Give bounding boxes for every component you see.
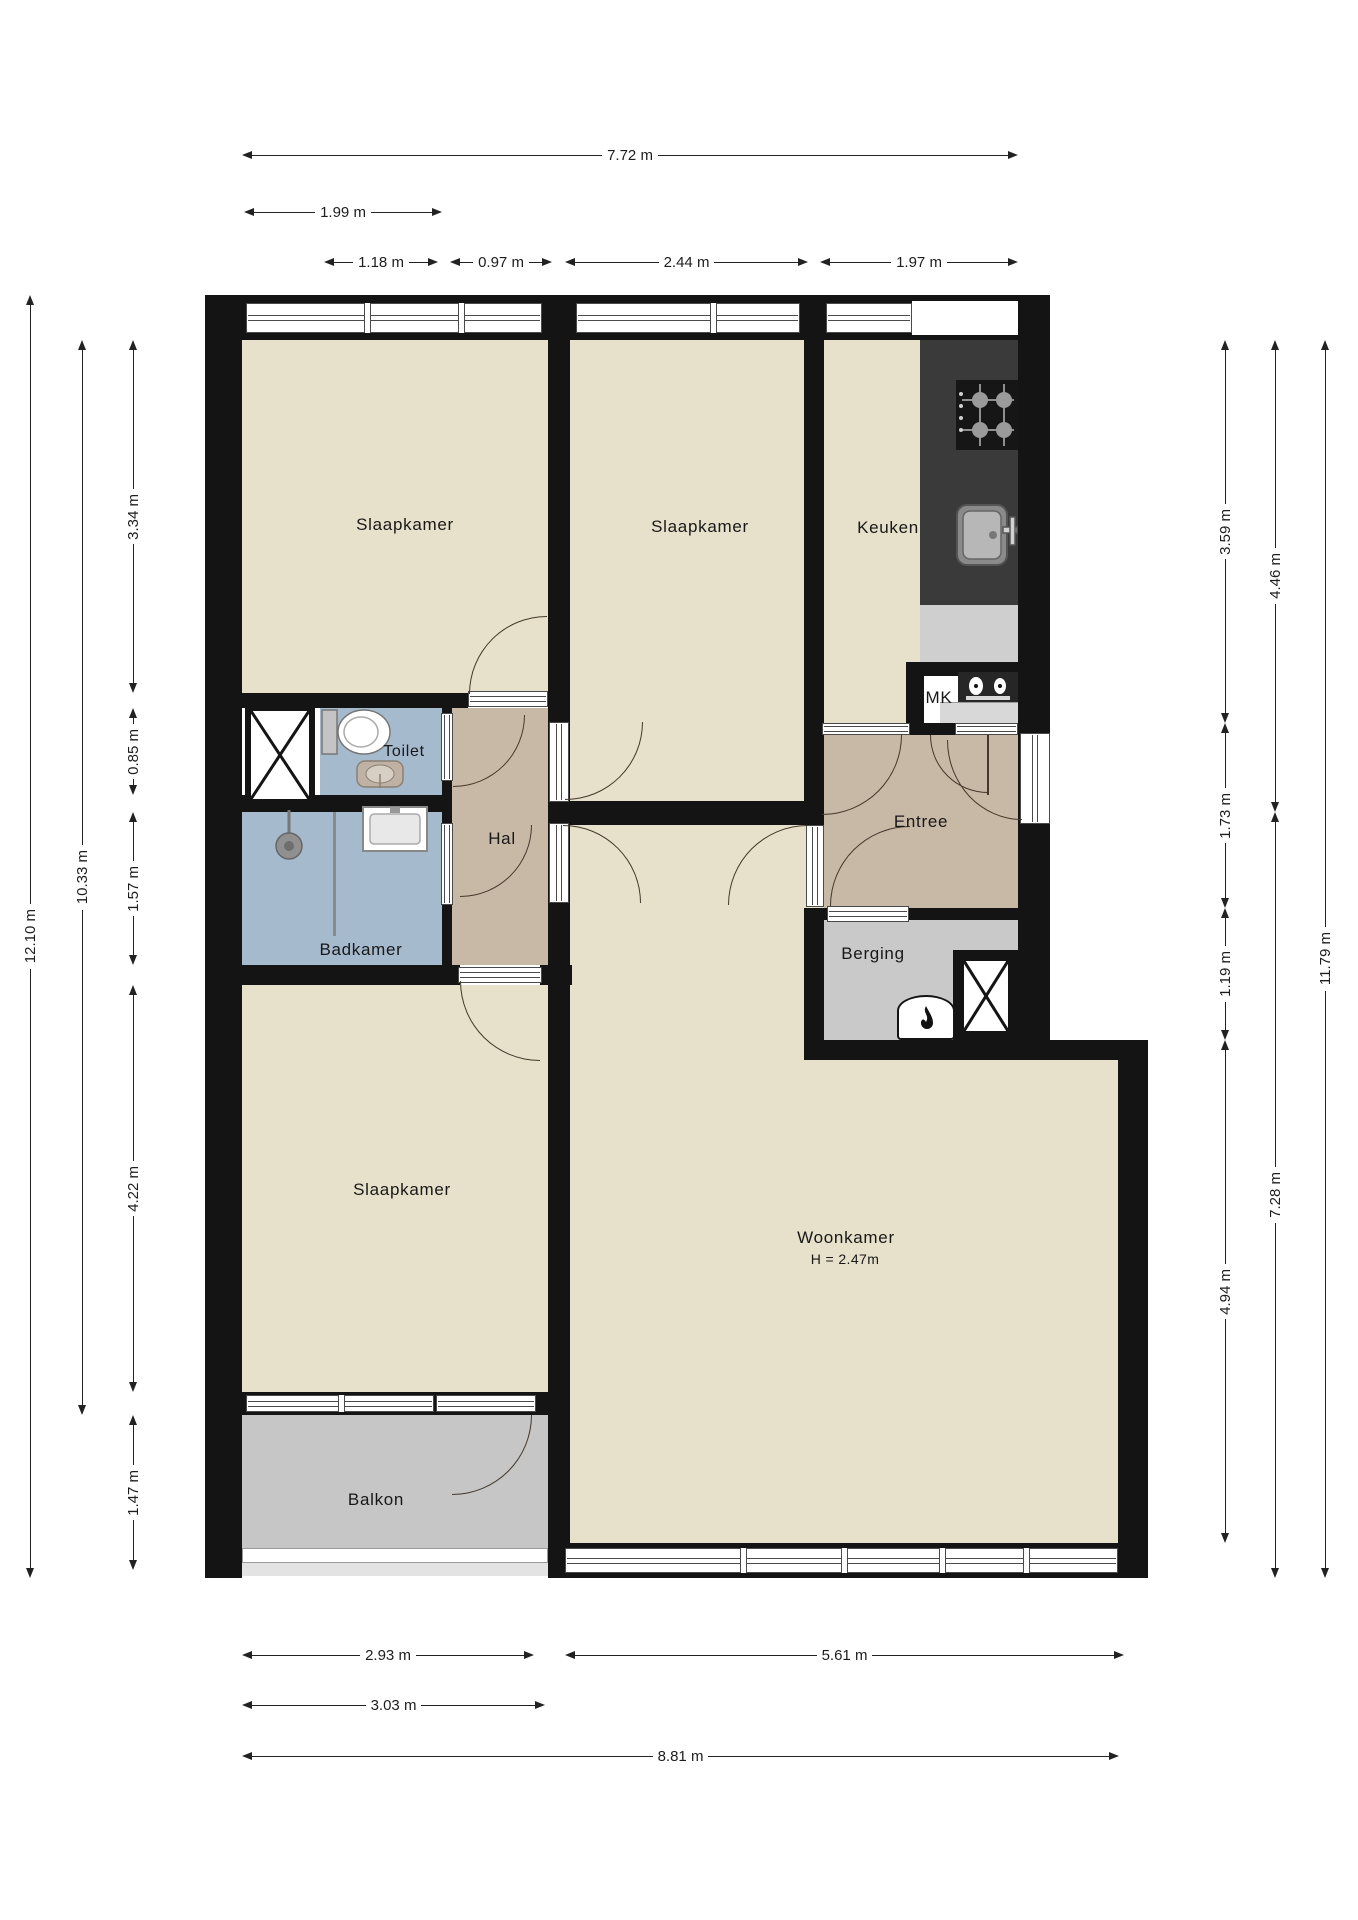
window xyxy=(826,303,912,333)
window xyxy=(576,303,800,333)
room-label-woonkamer: Woonkamer xyxy=(797,1228,895,1248)
room-label-slaapkamer-1: Slaapkamer xyxy=(356,515,454,535)
shaft-cross-icon xyxy=(961,958,1011,1034)
room-woonkamer-left xyxy=(570,825,824,1543)
room-label-keuken: Keuken xyxy=(857,518,919,538)
dim-left-badkamer: 1.57 m xyxy=(123,812,143,965)
room-label-badkamer: Badkamer xyxy=(319,940,402,960)
door-opening-berging xyxy=(827,906,909,922)
window-mullion xyxy=(1023,1548,1030,1573)
door-opening-mk xyxy=(955,723,1018,735)
dim-left-balkon: 1.47 m xyxy=(123,1415,143,1570)
dim-top-5: 1.97 m xyxy=(820,252,1018,272)
floorplan-canvas: Slaapkamer Slaapkamer Keuken Toilet Hal … xyxy=(0,0,1358,1920)
dim-right-sub-upper: 4.46 m xyxy=(1265,340,1285,812)
dim-top-2: 1.18 m xyxy=(324,252,438,272)
washbasin-icon xyxy=(362,806,428,852)
wall-right-upper xyxy=(1018,295,1050,1060)
dim-top-1: 1.99 m xyxy=(244,202,442,222)
window-mullion xyxy=(458,303,465,333)
room-label-entree: Entree xyxy=(894,812,948,832)
wall-badkamer-bottom-a xyxy=(205,965,460,985)
balkon-railing-shadow xyxy=(242,1563,548,1576)
room-label-woonkamer-height: H = 2.47m xyxy=(811,1251,880,1267)
shower-screen xyxy=(333,812,336,936)
room-label-toilet: Toilet xyxy=(383,743,425,761)
window xyxy=(565,1548,1118,1573)
wall-entree-top-a xyxy=(804,723,822,735)
door-opening-badkamer xyxy=(441,823,453,905)
dim-bottom-sub: 3.03 m xyxy=(242,1695,545,1715)
door-opening-front-door xyxy=(1020,733,1050,824)
shaft-cross-icon xyxy=(245,705,315,805)
window xyxy=(246,1395,434,1412)
dim-right-woonkamer: 4.94 m xyxy=(1215,1040,1235,1543)
shower-head-icon xyxy=(275,808,305,862)
wall-badkamer-bottom-b xyxy=(540,965,572,985)
meter-panel-icon xyxy=(958,672,1018,702)
wall-face-above-counter xyxy=(912,301,1018,335)
gas-hob-icon xyxy=(956,380,1018,450)
dim-top-total: 7.72 m xyxy=(242,145,1018,165)
door-opening-toilet xyxy=(441,713,453,781)
kitchen-sink-icon xyxy=(955,503,1019,567)
window-mullion xyxy=(710,303,717,333)
window-mullion xyxy=(740,1548,747,1573)
dim-right-sub-lower: 7.28 m xyxy=(1265,812,1285,1578)
wall-berging-left xyxy=(804,908,824,1060)
dim-top-4: 2.44 m xyxy=(565,252,808,272)
kitchen-counter-light xyxy=(920,605,1018,662)
dim-right-keuken: 3.59 m xyxy=(1215,340,1235,723)
door-opening-keuken xyxy=(822,723,910,735)
door-opening-entree-woonkamer xyxy=(806,825,824,907)
room-label-slaapkamer-3: Slaapkamer xyxy=(353,1180,451,1200)
dim-top-3: 0.97 m xyxy=(450,252,552,272)
dim-bottom-balkon: 2.93 m xyxy=(242,1645,534,1665)
room-label-balkon: Balkon xyxy=(348,1490,404,1510)
boiler-icon xyxy=(897,995,955,1040)
door-opening-balkon xyxy=(436,1395,536,1412)
dim-left-s3: 4.22 m xyxy=(123,985,143,1392)
wall-left xyxy=(205,295,242,1578)
room-label-slaapkamer-2: Slaapkamer xyxy=(651,517,749,537)
wall-right-lower xyxy=(1118,1040,1148,1578)
room-label-hal: Hal xyxy=(488,829,516,849)
dim-left-toilet: 0.85 m xyxy=(123,708,143,795)
window xyxy=(246,303,542,333)
wall-entree-top-b xyxy=(908,723,956,735)
dim-bottom-total: 8.81 m xyxy=(242,1746,1119,1766)
window-mullion xyxy=(841,1548,848,1573)
wall-s2-bottom xyxy=(570,801,806,825)
wall-berging-bottom xyxy=(804,1040,1148,1060)
room-label-mk: MK xyxy=(926,688,953,708)
window-mullion xyxy=(338,1395,345,1412)
balkon-railing xyxy=(242,1548,548,1563)
dim-left-sub: 10.33 m xyxy=(72,340,92,1415)
room-woonkamer-right xyxy=(804,1060,1118,1543)
room-keuken-passage xyxy=(824,662,906,723)
dim-right-total: 11.79 m xyxy=(1315,340,1335,1578)
dim-bottom-woonkamer: 5.61 m xyxy=(565,1645,1124,1665)
window-mullion xyxy=(364,303,371,333)
dim-right-entree: 1.73 m xyxy=(1215,723,1235,908)
dim-left-s1: 3.34 m xyxy=(123,340,143,693)
window-mullion xyxy=(939,1548,946,1573)
hand-basin-icon xyxy=(356,760,404,790)
room-label-berging: Berging xyxy=(841,944,905,964)
wall-s2-keuken xyxy=(804,295,824,825)
dim-right-berging: 1.19 m xyxy=(1215,908,1235,1040)
wall-center-vertical xyxy=(548,295,570,1578)
dim-left-total: 12.10 m xyxy=(20,295,40,1578)
